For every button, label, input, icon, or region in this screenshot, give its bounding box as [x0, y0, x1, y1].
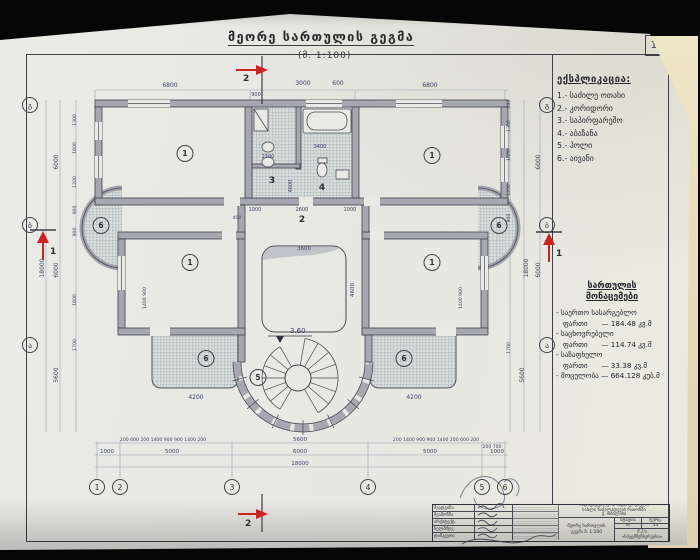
dim-label: 4200 — [188, 394, 203, 401]
plan-line — [270, 386, 288, 401]
dim-label: 1400 900 — [142, 287, 148, 309]
dim-label: 4200 — [406, 394, 421, 401]
svg-text:1: 1 — [50, 247, 56, 257]
dim-label: 1800 — [72, 142, 78, 154]
level-mark: 3.60 — [268, 327, 312, 343]
dim-label: 2300 — [262, 154, 275, 160]
dim-label: 6000 — [293, 449, 307, 455]
photo-of-blueprint: { "page": { "number": "13" }, "title": {… — [0, 0, 700, 560]
svg-text:2: 2 — [243, 74, 249, 84]
axis-number: 4 — [366, 483, 371, 492]
dim-label: 1000 — [249, 207, 262, 213]
drawing-sheet: 13 მეორე სართულის გეგმა (მ. 1:100) ექსპლ… — [0, 0, 700, 560]
room-number: 6 — [98, 221, 103, 230]
dim-label: 1000 — [490, 449, 504, 455]
central-void — [262, 246, 346, 332]
dim-label: 6000 — [535, 262, 542, 277]
dim-label: 6000 — [535, 154, 542, 169]
axis-letter: ბ — [545, 221, 549, 230]
dim-label: 1700 — [506, 342, 512, 354]
room-number: 1 — [187, 258, 192, 267]
dim-label: 2600 — [296, 207, 309, 213]
room-number: 6 — [401, 354, 406, 363]
room-number: 1 — [429, 151, 434, 160]
plan-line — [300, 339, 305, 366]
stair-arc — [305, 339, 338, 413]
plan-line — [264, 366, 286, 374]
dim-label: 200 — [506, 100, 512, 109]
dim-label: 1300 — [72, 114, 78, 126]
svg-text:2: 2 — [245, 519, 251, 529]
svg-text:1: 1 — [556, 249, 562, 259]
dim-label: 4600 — [350, 283, 356, 297]
dim-label: 6800 — [422, 82, 437, 89]
axis-letter: გ — [545, 101, 550, 110]
dim-label: 1300 — [506, 120, 512, 132]
axis-number: 3 — [230, 483, 235, 492]
dim-label: 6800 — [162, 82, 177, 89]
dim-label: 5000 — [165, 449, 179, 455]
dim-label: 5600 — [293, 437, 307, 443]
room-number: 1 — [429, 258, 434, 267]
handwritten-signatures — [432, 460, 700, 560]
dim-label: 3600 — [297, 246, 311, 252]
dim-label: 1800 — [72, 294, 78, 306]
room-number: 6 — [496, 221, 501, 230]
room-number: 5 — [255, 373, 260, 382]
dim-label: 900 — [506, 214, 512, 223]
room-number: 1 — [182, 149, 187, 158]
plan-line — [264, 382, 286, 390]
dim-label: 400 — [233, 215, 242, 221]
dim-label: 18000 — [291, 461, 309, 467]
dim-label: 1200 — [72, 176, 78, 188]
svg-text:3.60: 3.60 — [290, 327, 306, 335]
dim-label: 1400 900 — [458, 287, 464, 309]
dim-label: 3400 — [314, 144, 327, 150]
room-number: 6 — [203, 354, 208, 363]
axis-number: 2 — [118, 483, 123, 492]
plan-line — [310, 382, 335, 391]
dim-label: 1200 — [506, 184, 512, 196]
dim-label: 1800 — [506, 149, 512, 161]
room-number: 3 — [269, 176, 275, 186]
dim-label: 5600 — [519, 367, 526, 382]
axis-letter: ბ — [28, 221, 32, 230]
dim-label: 1700 — [72, 339, 78, 351]
dim-label: 1000 — [100, 449, 114, 455]
dim-label: 600 — [332, 80, 344, 87]
dim-label: 900 — [72, 206, 78, 215]
room-number: 4 — [319, 183, 325, 193]
dim-label: 900 — [72, 228, 78, 237]
dim-label: 3000 — [295, 80, 310, 87]
plan-line — [310, 364, 335, 373]
dim-label: 200 1400 900 900 1400 200 600 200 — [393, 437, 479, 443]
dim-label: 4600 — [288, 180, 294, 193]
dim-label: 18000 — [39, 258, 46, 277]
dim-label: 900 — [251, 92, 261, 98]
plan-line — [280, 389, 292, 409]
stair-center — [285, 365, 311, 391]
dim-label: 18000 — [523, 258, 530, 277]
dim-label: 6000 — [53, 154, 60, 169]
axis-letter: გ — [28, 101, 33, 110]
room-number: 2 — [299, 215, 305, 225]
plan-line — [280, 347, 292, 367]
axis-letter: ა — [28, 341, 32, 350]
dim-label: 5600 — [53, 367, 60, 382]
dim-label: 6000 — [53, 262, 60, 277]
axis-letter: ა — [545, 341, 549, 350]
axis-number: 1 — [95, 483, 100, 492]
plan-line — [270, 355, 288, 370]
dim-label: 1000 — [344, 207, 357, 213]
dim-label: 5000 — [423, 449, 437, 455]
dim-label: 200 600 200 1400 900 900 1400 200 — [120, 437, 206, 443]
